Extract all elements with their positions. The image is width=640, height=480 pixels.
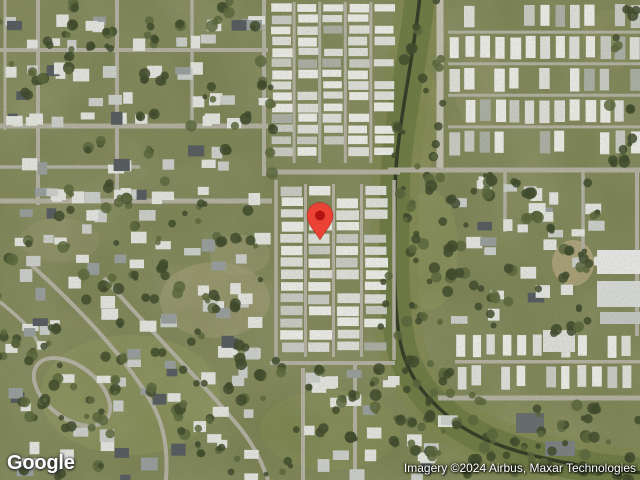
satellite-imagery [0, 0, 640, 480]
google-logo[interactable]: Google [7, 452, 75, 475]
map-viewport[interactable]: Google Imagery ©2024 Airbus, Maxar Techn… [0, 0, 640, 480]
attribution-text: Imagery ©2024 Airbus, Maxar Technologies [404, 461, 636, 475]
